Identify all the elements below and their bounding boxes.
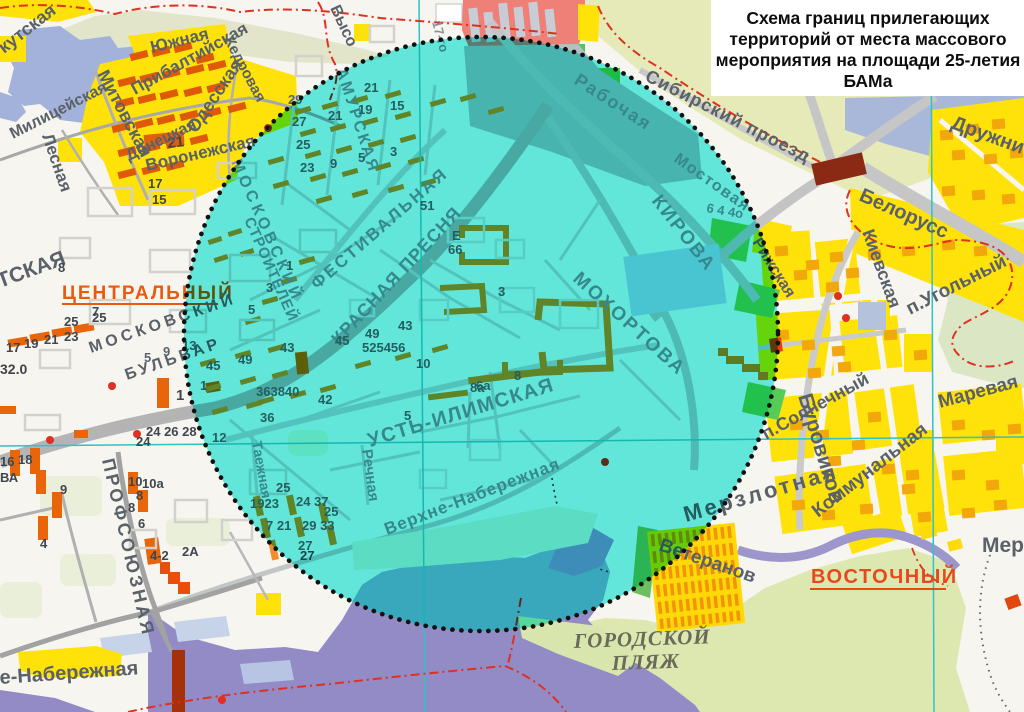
svg-text:территорий от места массового: территорий от места массового xyxy=(729,29,1006,49)
svg-text:9: 9 xyxy=(163,344,170,359)
svg-text:4-2: 4-2 xyxy=(150,548,169,563)
svg-text:ВОСТОЧНЫЙ: ВОСТОЧНЫЙ xyxy=(811,564,958,588)
svg-text:6: 6 xyxy=(138,516,145,531)
svg-text:мероприятия на площади 25-лети: мероприятия на площади 25-летия xyxy=(716,50,1021,70)
svg-text:23: 23 xyxy=(64,329,78,344)
svg-text:25: 25 xyxy=(64,314,78,329)
svg-text:17: 17 xyxy=(148,176,162,191)
svg-text:8: 8 xyxy=(58,260,65,275)
svg-text:17: 17 xyxy=(6,340,20,355)
svg-text:24: 24 xyxy=(136,434,151,449)
svg-text:5: 5 xyxy=(144,350,151,365)
svg-text:ВА: ВА xyxy=(0,470,19,485)
svg-text:10а: 10а xyxy=(142,476,164,491)
svg-text:18: 18 xyxy=(18,452,32,467)
svg-text:32.0: 32.0 xyxy=(0,361,27,377)
svg-text:ПЛЯЖ: ПЛЯЖ xyxy=(610,649,680,675)
svg-text:21: 21 xyxy=(44,332,58,347)
svg-text:9: 9 xyxy=(60,482,67,497)
svg-text:24 26 28: 24 26 28 xyxy=(146,424,197,439)
svg-text:БАМа: БАМа xyxy=(843,71,892,91)
svg-text:16: 16 xyxy=(0,454,14,469)
svg-text:15: 15 xyxy=(152,192,166,207)
svg-text:Мер: Мер xyxy=(982,534,1024,557)
svg-text:2А: 2А xyxy=(182,544,199,559)
svg-text:ГОРОДСКОЙ: ГОРОДСКОЙ xyxy=(572,624,711,653)
svg-text:7: 7 xyxy=(92,304,99,319)
svg-text:19: 19 xyxy=(24,336,38,351)
svg-text:8: 8 xyxy=(128,500,135,515)
svg-text:1: 1 xyxy=(176,387,184,404)
svg-text:10: 10 xyxy=(128,474,142,489)
svg-text:Схема границ прилегающих: Схема границ прилегающих xyxy=(746,8,990,28)
svg-text:4: 4 xyxy=(40,536,48,551)
